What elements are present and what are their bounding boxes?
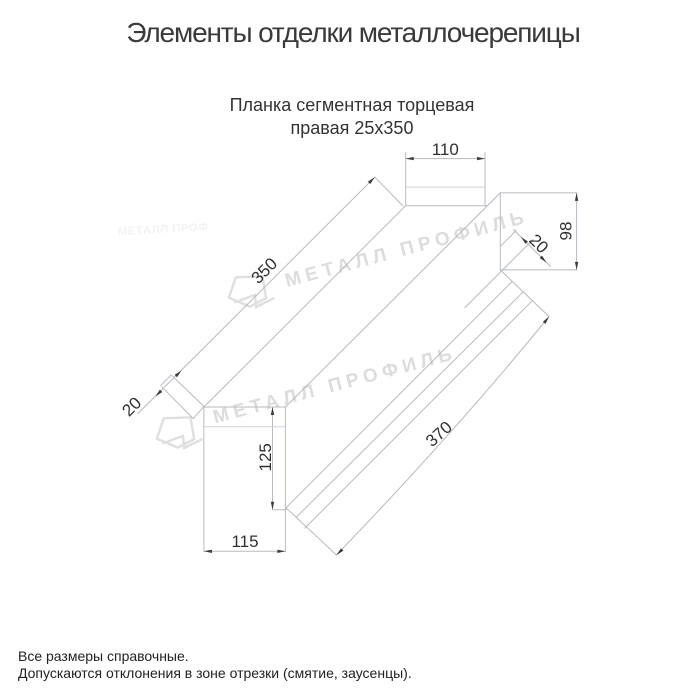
- svg-text:110: 110: [432, 140, 459, 159]
- svg-text:МЕТАЛЛ ПРОФ: МЕТАЛЛ ПРОФ: [118, 221, 209, 237]
- svg-text:20: 20: [525, 230, 552, 257]
- svg-text:98: 98: [557, 222, 576, 241]
- svg-text:115: 115: [231, 532, 258, 551]
- svg-text:350: 350: [248, 254, 281, 287]
- svg-text:125: 125: [256, 443, 275, 471]
- svg-text:МЕТАЛЛ ПРОФИЛЬ: МЕТАЛЛ ПРОФИЛЬ: [211, 343, 459, 428]
- svg-text:20: 20: [118, 393, 145, 420]
- svg-text:370: 370: [422, 418, 456, 451]
